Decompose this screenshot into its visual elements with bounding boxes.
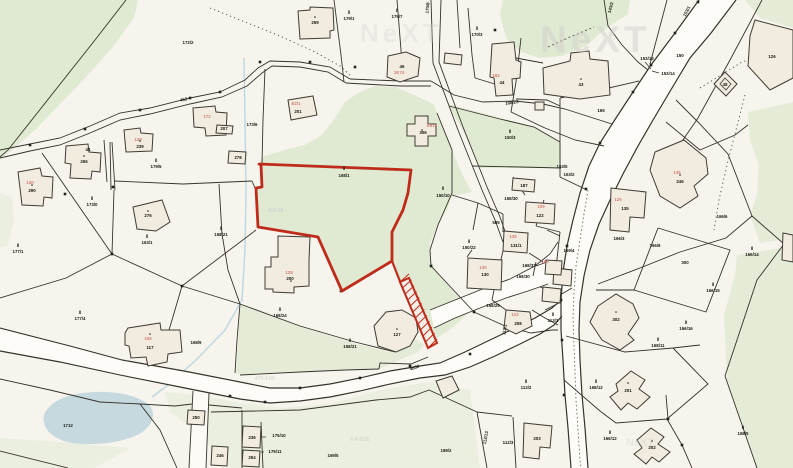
- svg-text:173/0: 173/0: [87, 202, 99, 207]
- svg-text:ll: ll: [552, 312, 554, 317]
- svg-text:ll: ll: [343, 166, 345, 171]
- svg-text:168/21: 168/21: [214, 232, 228, 237]
- svg-text:169/5: 169/5: [328, 453, 340, 458]
- svg-text:127: 127: [393, 332, 401, 337]
- svg-text:ll: ll: [348, 10, 350, 15]
- svg-text:266: 266: [80, 159, 88, 164]
- svg-text:ll: ll: [349, 338, 351, 343]
- svg-text:158/21: 158/21: [343, 344, 357, 349]
- svg-text:201: 201: [624, 388, 632, 393]
- svg-text:ll: ll: [396, 8, 398, 13]
- svg-text:172: 172: [203, 114, 211, 119]
- svg-text:© K-0:05: © K-0:05: [350, 436, 370, 443]
- svg-text:300: 300: [681, 260, 689, 265]
- svg-text:168/37: 168/37: [522, 263, 536, 268]
- svg-text:175/10: 175/10: [272, 433, 286, 438]
- svg-text:126: 126: [768, 54, 776, 59]
- svg-text:ll: ll: [17, 243, 19, 248]
- svg-text:207: 207: [220, 126, 228, 131]
- svg-text:48: 48: [723, 82, 728, 87]
- svg-text:ll: ll: [279, 307, 281, 312]
- svg-text:168/30: 168/30: [516, 274, 530, 279]
- svg-text:122: 122: [511, 312, 519, 317]
- svg-text:140: 140: [26, 180, 34, 185]
- svg-text:153/14: 153/14: [661, 71, 675, 76]
- svg-text:470-1:05: 470-1:05: [255, 376, 275, 382]
- svg-text:166/16: 166/16: [679, 326, 693, 331]
- svg-text:168/5: 168/5: [738, 431, 750, 436]
- svg-text:ll: ll: [657, 337, 659, 342]
- svg-text:162: 162: [492, 73, 500, 78]
- svg-text:ll: ll: [509, 129, 511, 134]
- svg-text:278: 278: [234, 155, 242, 160]
- svg-text:E913: E913: [427, 123, 438, 128]
- svg-text:131/1: 131/1: [511, 243, 523, 248]
- svg-text:ll: ll: [609, 430, 611, 435]
- svg-text:1E74: 1E74: [394, 70, 405, 75]
- svg-text:169: 169: [541, 259, 549, 264]
- svg-text:109: 109: [537, 204, 545, 209]
- svg-text:112/3: 112/3: [503, 440, 514, 445]
- svg-text:150: 150: [676, 53, 684, 58]
- svg-text:150/10: 150/10: [436, 193, 450, 198]
- svg-text:44: 44: [86, 147, 91, 152]
- svg-text:239: 239: [136, 144, 144, 149]
- svg-text:166/14: 166/14: [745, 252, 759, 257]
- svg-text:130: 130: [481, 272, 489, 277]
- svg-text:ll: ll: [220, 226, 222, 231]
- svg-text:189/2: 189/2: [441, 448, 453, 453]
- svg-text:113/1: 113/1: [548, 318, 559, 323]
- svg-text:135: 135: [509, 234, 517, 239]
- svg-text:NeXT: NeXT: [626, 437, 654, 449]
- svg-text:165: 165: [597, 108, 605, 113]
- svg-text:130: 130: [479, 265, 487, 270]
- svg-text:135: 135: [621, 206, 629, 211]
- svg-text:ll: ll: [751, 246, 753, 251]
- svg-text:201: 201: [294, 109, 302, 114]
- svg-text:177/1: 177/1: [13, 249, 25, 254]
- svg-text:ll: ll: [146, 234, 148, 239]
- svg-text:168/30: 168/30: [504, 196, 518, 201]
- svg-text:ll: ll: [79, 310, 81, 315]
- svg-text:179/1: 179/1: [344, 16, 356, 21]
- svg-text:173/6: 173/6: [247, 122, 259, 127]
- svg-text:ll: ll: [442, 186, 444, 191]
- svg-text:168/12: 168/12: [589, 385, 603, 390]
- svg-text:ll: ll: [525, 379, 527, 384]
- svg-text:166/12: 166/12: [603, 436, 617, 441]
- svg-text:208: 208: [514, 321, 522, 326]
- svg-text:236: 236: [248, 435, 256, 440]
- svg-text:306: 306: [419, 130, 427, 135]
- svg-text:177/4: 177/4: [75, 316, 87, 321]
- svg-text:166/3: 166/3: [614, 236, 626, 241]
- svg-text:276: 276: [144, 213, 152, 218]
- svg-text:168/9: 168/9: [191, 340, 203, 345]
- svg-text:163/1: 163/1: [142, 240, 154, 245]
- svg-text:ll: ll: [595, 379, 597, 384]
- svg-text:290: 290: [28, 188, 36, 193]
- svg-text:168/1: 168/1: [339, 173, 351, 178]
- svg-text:169/4: 169/4: [564, 248, 576, 253]
- svg-text:ll: ll: [468, 239, 470, 244]
- svg-text:1712: 1712: [63, 423, 73, 428]
- svg-text:170/3: 170/3: [472, 32, 484, 37]
- svg-text:122: 122: [536, 213, 544, 218]
- svg-text:139: 139: [134, 137, 142, 142]
- svg-text:44: 44: [500, 80, 505, 85]
- svg-text:NeXT: NeXT: [540, 19, 651, 60]
- svg-text:294: 294: [248, 455, 256, 460]
- svg-text:246: 246: [676, 179, 684, 184]
- svg-text:259: 259: [311, 20, 319, 25]
- svg-text:125: 125: [614, 197, 622, 202]
- svg-text:128: 128: [285, 270, 293, 275]
- svg-text:166/15: 166/15: [706, 288, 720, 293]
- svg-text:168/24: 168/24: [273, 313, 287, 318]
- svg-text:NeXT: NeXT: [360, 18, 442, 48]
- svg-text:250: 250: [192, 415, 200, 420]
- svg-text:203: 203: [533, 436, 541, 441]
- svg-text:172/2: 172/2: [183, 40, 195, 45]
- svg-text:166/6: 166/6: [717, 214, 729, 219]
- svg-text:166/8: 166/8: [650, 243, 662, 248]
- svg-text:ll: ll: [712, 282, 714, 287]
- svg-text:150/3: 150/3: [505, 135, 517, 140]
- svg-text:179/5: 179/5: [151, 164, 163, 169]
- svg-text:106: 106: [144, 336, 152, 341]
- svg-text:246: 246: [216, 453, 224, 458]
- svg-text:ll: ll: [476, 26, 478, 31]
- svg-text:E2/1: E2/1: [291, 101, 301, 106]
- svg-text:© K 05: © K 05: [268, 207, 284, 214]
- svg-text:179/11: 179/11: [268, 449, 282, 454]
- svg-text:168/25: 168/25: [486, 303, 500, 308]
- svg-text:200: 200: [286, 276, 294, 281]
- svg-text:585: 585: [492, 220, 500, 225]
- svg-text:187: 187: [520, 183, 528, 188]
- svg-text:ll: ll: [91, 196, 93, 201]
- svg-text:ll: ll: [742, 425, 744, 430]
- svg-text:117: 117: [146, 345, 154, 350]
- svg-text:168/11: 168/11: [651, 343, 665, 348]
- svg-text:302: 302: [612, 317, 620, 322]
- svg-text:43: 43: [579, 82, 584, 87]
- svg-text:163/2: 163/2: [564, 172, 576, 177]
- svg-text:163/5: 163/5: [557, 164, 569, 169]
- svg-text:ll: ll: [685, 320, 687, 325]
- svg-text:46: 46: [400, 64, 405, 69]
- svg-text:150/22: 150/22: [462, 245, 476, 250]
- svg-text:113/2: 113/2: [521, 385, 532, 390]
- svg-text:ll: ll: [155, 158, 157, 163]
- svg-text:170/8: 170/8: [425, 2, 431, 14]
